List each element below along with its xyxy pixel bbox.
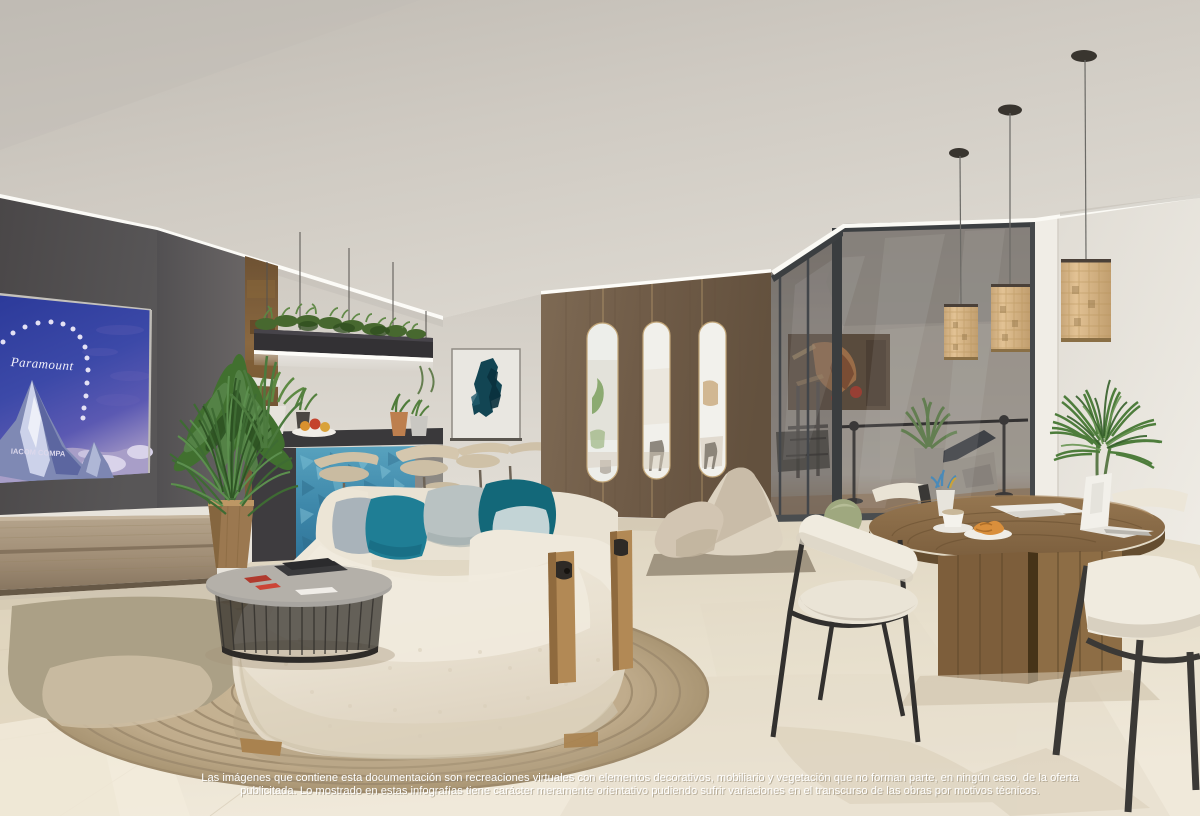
svg-text:publicitada. Lo mostrado en es: publicitada. Lo mostrado en estas infogr… — [240, 785, 1040, 797]
svg-text:Las imágenes que contiene esta: Las imágenes que contiene esta documenta… — [201, 772, 1079, 784]
